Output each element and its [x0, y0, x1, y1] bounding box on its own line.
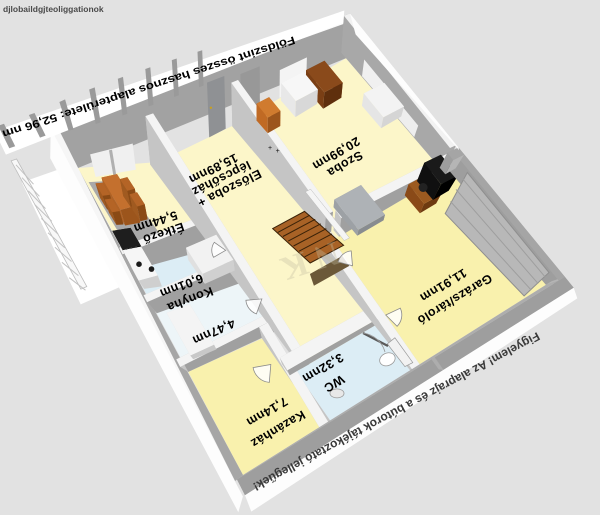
svg-text:+: + [276, 148, 280, 155]
svg-text:djlobaildgjteoliggationok: djlobaildgjteoliggationok [3, 4, 104, 14]
svg-text:+: + [268, 145, 272, 152]
